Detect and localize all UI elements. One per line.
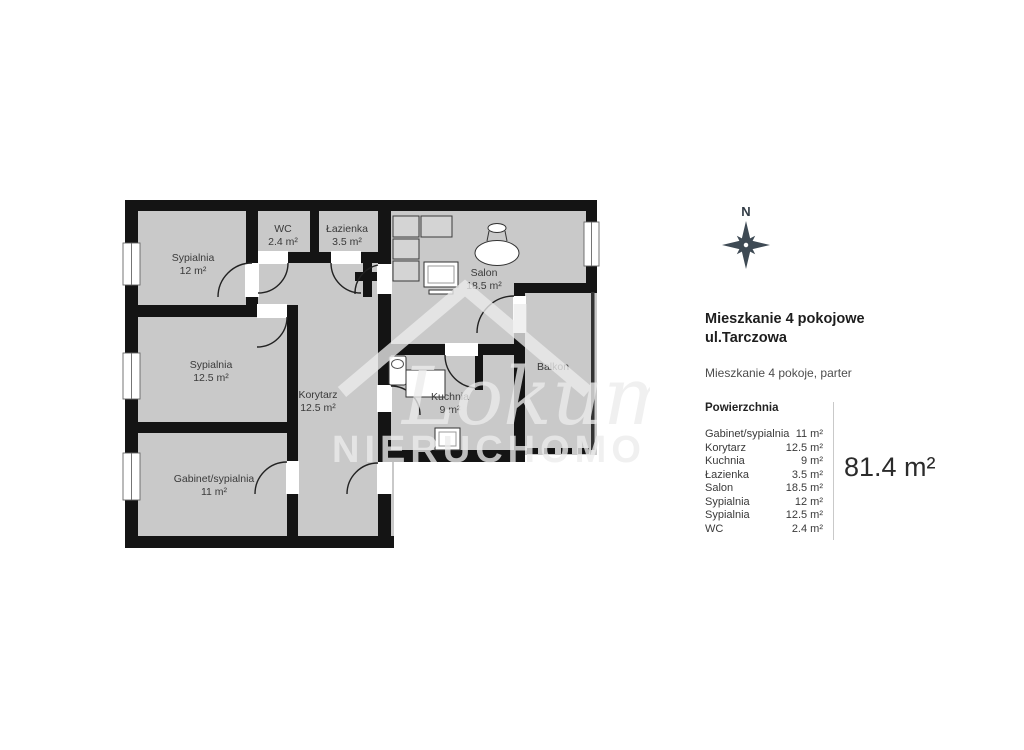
label-bathroom-name: Łazienka: [326, 223, 368, 235]
row-label: Sypialnia: [705, 509, 750, 523]
row-value: 12.5 m²: [786, 442, 823, 456]
wall-bottom: [125, 536, 394, 548]
table-row: Łazienka 3.5 m²: [705, 469, 823, 483]
vertical-divider: [833, 402, 834, 540]
round-table: [475, 241, 519, 266]
label-bedroom2-name: Sypialnia: [190, 359, 233, 371]
row-value: 2.4 m²: [792, 523, 823, 537]
label-bedroom1-area: 12 m²: [180, 265, 207, 277]
compass-rose-icon: [722, 221, 770, 269]
wall-wc-bath-divider: [310, 200, 319, 252]
row-label: Sypialnia: [705, 496, 750, 510]
label-wc-area: 2.4 m²: [268, 236, 298, 248]
table-row: Sypialnia 12.5 m²: [705, 509, 823, 523]
wall-top: [125, 200, 597, 211]
label-bathroom-area: 3.5 m²: [332, 236, 362, 248]
row-label: Gabinet/sypialnia: [705, 428, 789, 442]
door-gap-bathroom: [331, 251, 361, 264]
table-row: Salon 18.5 m²: [705, 482, 823, 496]
label-bedroom2-area: 12.5 m²: [193, 372, 229, 384]
label-wc-name: WC: [274, 223, 292, 235]
label-gabinet-name: Gabinet/sypialnia: [174, 473, 255, 485]
row-value: 3.5 m²: [792, 469, 823, 483]
door-gap-bedroom1: [245, 263, 259, 297]
table-row: Gabinet/sypialnia 11 m²: [705, 428, 823, 442]
area-table-title: Powierzchnia: [705, 402, 779, 414]
wall-bedroom1-right: [246, 200, 258, 317]
label-salon-name: Salon: [471, 267, 498, 279]
listing-title-line1: Mieszkanie 4 pokojowe: [705, 310, 865, 329]
table-row: Korytarz 12.5 m²: [705, 442, 823, 456]
label-corridor-area: 12.5 m²: [300, 402, 336, 414]
row-label: Łazienka: [705, 469, 749, 483]
compass-north-label: N: [741, 204, 750, 219]
door-gap-kitchen: [377, 385, 392, 412]
area-table: Gabinet/sypialnia 11 m² Korytarz 12.5 m²…: [705, 428, 823, 536]
compass-center-dot: [743, 242, 749, 248]
sofa-cushion: [421, 216, 452, 237]
listing-title-line2: ul.Tarczowa: [705, 329, 865, 348]
tv-screen-inner: [428, 266, 454, 283]
row-label: Salon: [705, 482, 733, 496]
table-row: WC 2.4 m²: [705, 523, 823, 537]
listing-title: Mieszkanie 4 pokojowe ul.Tarczowa: [705, 310, 865, 348]
label-gabinet-area: 11 m²: [201, 486, 228, 498]
row-label: WC: [705, 523, 723, 537]
row-value: 11 m²: [796, 428, 823, 442]
label-corridor-name: Korytarz: [298, 389, 337, 401]
lamp-top: [488, 224, 506, 233]
row-value: 18.5 m²: [786, 482, 823, 496]
wall-balcony-top: [514, 283, 597, 293]
watermark-caps-text: NIERUCHOMO: [332, 429, 646, 471]
table-row: Sypialnia 12 m²: [705, 496, 823, 510]
door-gap-gabinet: [286, 461, 299, 494]
sofa-cushion: [393, 239, 419, 259]
door-gap-bedroom2: [257, 304, 287, 318]
table-row: Kuchnia 9 m²: [705, 455, 823, 469]
floor-plan: Sypialnia 12 m² WC 2.4 m² Łazienka 3.5 m…: [0, 0, 1024, 750]
row-value: 9 m²: [801, 455, 823, 469]
total-area: 81.4 m²: [844, 452, 936, 483]
door-gap-wc: [258, 251, 288, 264]
label-bedroom1-name: Sypialnia: [172, 252, 215, 264]
row-value: 12 m²: [795, 496, 823, 510]
sofa-cushion: [393, 216, 419, 237]
row-value: 12.5 m²: [786, 509, 823, 523]
wall-gabinet-top: [125, 422, 298, 433]
sofa-cushion: [393, 261, 419, 281]
listing-subtitle: Mieszkanie 4 pokoje, parter: [705, 366, 852, 380]
door-gap-salon: [377, 264, 392, 294]
row-label: Kuchnia: [705, 455, 745, 469]
row-label: Korytarz: [705, 442, 746, 456]
